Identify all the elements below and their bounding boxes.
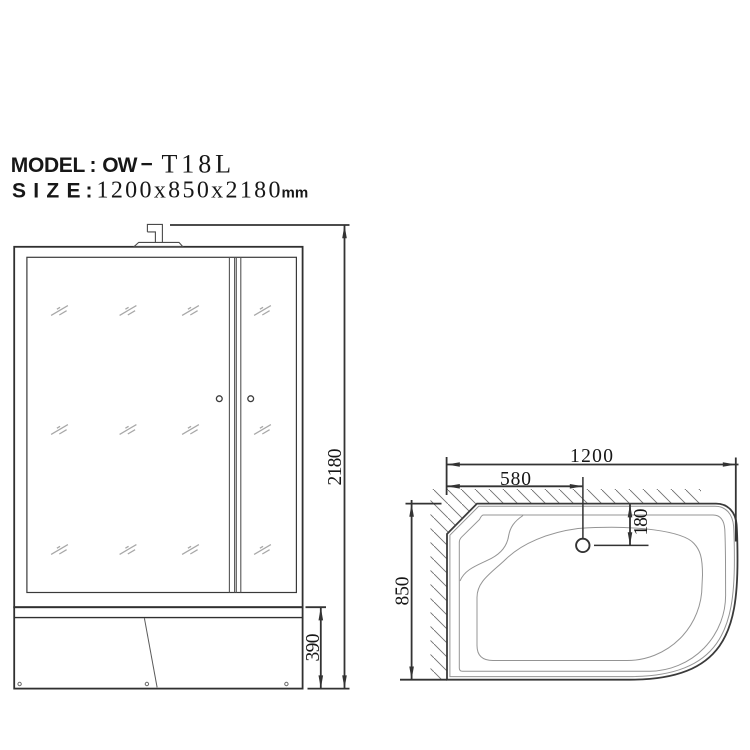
svg-text:OW: OW — [102, 154, 137, 177]
svg-text::: : — [90, 154, 97, 177]
svg-text:1200x850x2180: 1200x850x2180 — [97, 178, 281, 204]
svg-text:1200: 1200 — [570, 446, 613, 467]
svg-text:2180: 2180 — [325, 449, 346, 486]
svg-text:180: 180 — [631, 509, 652, 536]
svg-text:SIZE: SIZE — [12, 180, 81, 203]
svg-text:390: 390 — [303, 634, 324, 662]
svg-text:580: 580 — [500, 469, 531, 490]
svg-text:MODEL: MODEL — [11, 154, 86, 177]
svg-text:T18L: T18L — [162, 150, 232, 179]
svg-text:−: − — [141, 153, 153, 176]
svg-text::: : — [86, 180, 93, 203]
svg-text:mm: mm — [282, 185, 309, 202]
svg-text:850: 850 — [393, 577, 414, 606]
